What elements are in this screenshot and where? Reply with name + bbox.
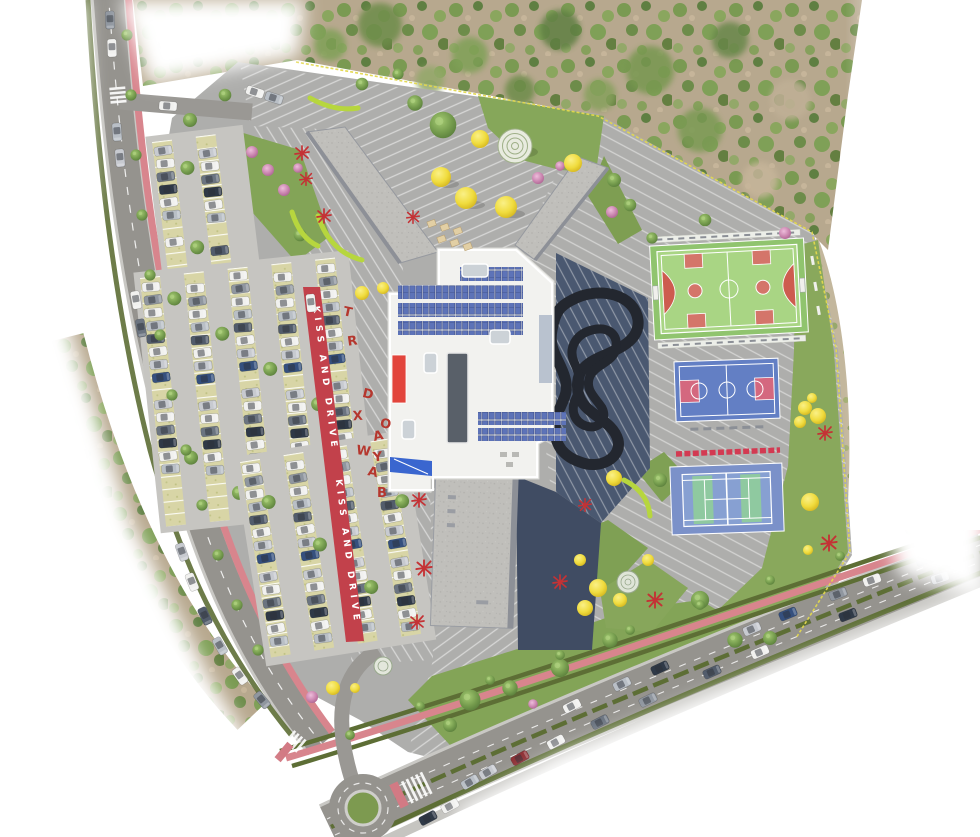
skylight [402,420,415,439]
multi-sport-court [649,229,809,349]
plaza-letter: X [352,409,363,425]
skylight [424,353,437,373]
solar-array-row [478,412,566,425]
roof-glass-band [539,315,552,383]
roof-unit [506,462,513,467]
center-circle-east [756,280,771,295]
solar-array-row [478,428,566,441]
parked-car [165,236,184,247]
spur-road [120,101,252,112]
basketball-court [674,358,780,430]
plaza-letter: W [355,443,371,460]
site-plan-canvas: KISS AND DRIVE KISS AND DRIVE [0,0,980,837]
parked-car [210,245,229,256]
basketball-key [752,250,771,265]
solar-array-row [398,285,523,299]
plaza-letter: B [377,486,387,501]
basketball-key [755,310,774,325]
south-wing [430,476,518,629]
center-circle-west [688,283,703,298]
plaza-letter: R [347,333,359,349]
skylight [490,330,510,344]
basketball-key [687,313,706,328]
tennis-court [670,463,784,535]
kiss-lane-car [305,294,316,313]
solar-array-row [398,303,523,317]
roof-unit [512,452,519,457]
basketball-key [684,253,703,268]
atrium-skylight-strip [447,353,468,443]
dome-climber [617,571,639,593]
skylight [462,264,488,277]
goal-west [653,286,659,300]
small-dome [374,657,392,675]
goal-east [800,278,806,292]
roof-accent-red [392,355,406,403]
site-plan-rendering: KISS AND DRIVE KISS AND DRIVE [0,0,980,837]
roundabout-island [346,791,380,825]
roof-unit [500,452,507,457]
